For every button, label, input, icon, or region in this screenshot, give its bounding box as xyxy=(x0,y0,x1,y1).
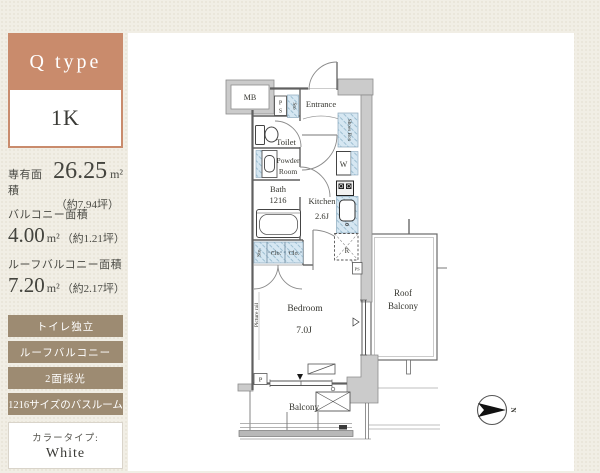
powder-room-label: Room xyxy=(279,167,298,176)
balcony-label: Balcony xyxy=(289,402,319,412)
svg-text:W: W xyxy=(340,160,348,169)
drain-pipe xyxy=(407,360,411,374)
hall-door-arc xyxy=(302,135,337,170)
picture-rail-label: Picture rail xyxy=(254,302,260,327)
closets: Sto. Clo. Clo. xyxy=(254,242,303,263)
area-note: （約1.21坪） xyxy=(62,230,123,246)
closet-sto-label: Sto. xyxy=(257,248,263,257)
feature-tag-toilet: トイレ独立 xyxy=(8,315,123,337)
drain-box xyxy=(339,425,347,430)
compass-n-label: N xyxy=(509,407,517,412)
area-row-exclusive: 専有面積 26.25 m² （約7.94坪） xyxy=(8,158,123,212)
feature-tag-bathroom: 1216サイズのバスルーム xyxy=(8,393,123,415)
floorplan-svg: Roof Balcony xyxy=(128,33,574,471)
powder-sink-icon xyxy=(256,151,277,178)
plan-type-header: Q type xyxy=(10,35,121,90)
svg-text:P: P xyxy=(259,377,263,384)
feature-tag-lighting: 2面採光 xyxy=(8,367,123,389)
area-label: ルーフバルコニー面積 xyxy=(8,256,123,272)
area-note: （約2.17坪） xyxy=(62,280,123,296)
bath-label: 1216 xyxy=(270,195,287,205)
feature-tag-roof-balcony: ルーフバルコニー xyxy=(8,341,123,363)
bath-label: Bath xyxy=(270,184,287,194)
mb-label: MB xyxy=(244,93,256,102)
svg-text:Sto: Sto xyxy=(291,102,297,110)
entrance-step xyxy=(303,116,339,119)
balcony-rail xyxy=(239,431,353,437)
area-label: 専有面積 xyxy=(8,166,50,198)
window-lock-marker xyxy=(297,374,303,380)
ps-shaft-small: PS xyxy=(353,263,363,275)
closet-clo-label: Clo. xyxy=(289,251,300,257)
kitchen-sink-icon xyxy=(337,197,359,234)
stove-icon xyxy=(337,181,354,196)
area-row-roof-balcony: ルーフバルコニー面積 7.20 m² （約2.17坪） xyxy=(8,256,123,298)
area-value: 26.25 xyxy=(53,158,107,185)
bathtub-icon xyxy=(257,210,301,238)
closet-clo-label: Clo. xyxy=(271,251,282,257)
area-row-balcony: バルコニー面積 4.00 m² （約1.21坪） xyxy=(8,206,123,248)
toilet-label: Toilet xyxy=(276,137,296,147)
area-value: 7.20 xyxy=(8,273,45,298)
closet-door-arc xyxy=(254,265,278,289)
washer-space: W xyxy=(337,152,359,176)
window-open-marker xyxy=(353,318,359,326)
closet-door-arc xyxy=(278,265,302,289)
svg-text:PS: PS xyxy=(355,267,361,272)
area-unit: m² xyxy=(110,167,123,182)
area-value: 4.00 xyxy=(8,223,45,248)
bedroom-label: Bedroom xyxy=(287,304,323,314)
entrance-label: Entrance xyxy=(306,99,336,109)
area-unit: m² xyxy=(47,231,60,246)
ps-shaft-top: P S xyxy=(275,96,287,116)
plan-layout-label: 1K xyxy=(10,90,121,146)
roof-balcony-label: Roof xyxy=(394,288,412,298)
svg-text:S: S xyxy=(279,109,282,115)
area-label: バルコニー面積 xyxy=(8,206,123,222)
storage-top: Sto xyxy=(288,95,299,118)
shoes-box: Shoes Box xyxy=(338,113,358,147)
roof-balcony-label: Balcony xyxy=(388,301,418,311)
toilet-icon xyxy=(256,126,279,145)
kitchen-size-label: 2.6J xyxy=(315,211,330,221)
plan-type-box: Q type 1K xyxy=(8,33,123,148)
powder-room-label: Powder xyxy=(277,156,300,165)
area-unit: m² xyxy=(47,281,60,296)
fridge-space: R xyxy=(335,234,359,261)
front-door-arc xyxy=(309,62,337,90)
color-type-label: カラータイプ: xyxy=(9,430,122,444)
roof-balcony: Roof Balcony xyxy=(371,219,447,388)
color-type-value: White xyxy=(9,446,122,462)
kitchen-label: Kitchen xyxy=(309,196,337,206)
color-type-box: カラータイプ: White xyxy=(8,422,123,469)
svg-text:R: R xyxy=(345,247,350,255)
balcony xyxy=(239,387,440,439)
compass: N xyxy=(478,396,518,425)
bedroom-size-label: 7.0J xyxy=(296,326,312,336)
powder-door-arc xyxy=(300,167,330,197)
svg-text:Shoes Box: Shoes Box xyxy=(346,119,352,142)
